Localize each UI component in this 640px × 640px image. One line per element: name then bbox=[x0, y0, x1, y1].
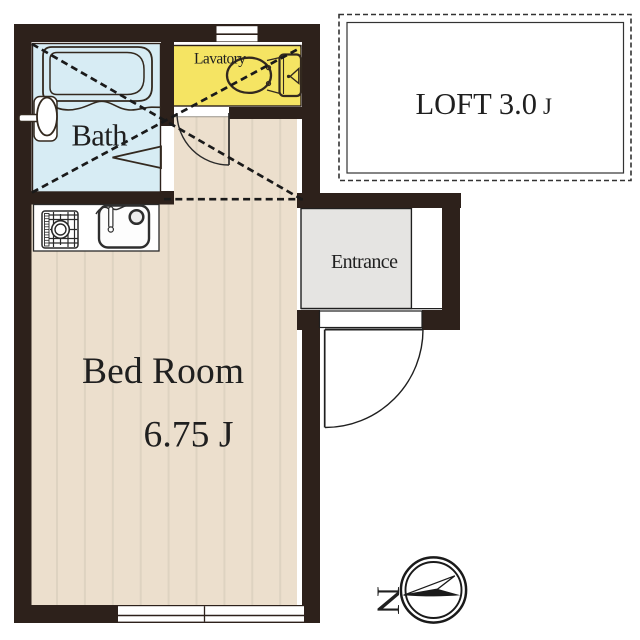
svg-text:Lavatory: Lavatory bbox=[194, 51, 246, 68]
svg-text:6.75 J: 6.75 J bbox=[144, 415, 234, 456]
svg-text:Entrance: Entrance bbox=[331, 251, 398, 273]
svg-text:Bed Room: Bed Room bbox=[82, 351, 244, 392]
svg-text:J: J bbox=[543, 94, 552, 119]
svg-text:N: N bbox=[370, 586, 406, 615]
svg-text:LOFT 3.0: LOFT 3.0 bbox=[416, 87, 537, 121]
svg-text:Bath: Bath bbox=[72, 119, 128, 153]
